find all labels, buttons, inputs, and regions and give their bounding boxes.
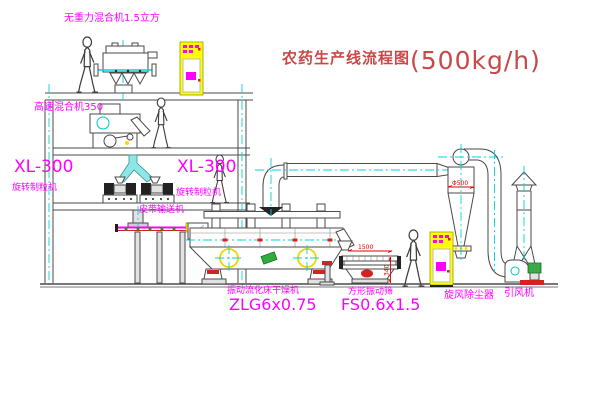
induced-draft-fan (505, 260, 544, 285)
label-screen-model: FS0.6x1.5 (341, 297, 420, 313)
label-belt-conveyor: 皮带输送机 (139, 206, 184, 215)
label-granulator-mid-model: XL-300 (177, 159, 236, 176)
screen-length-dimension: 1500 (358, 244, 373, 251)
person-second-floor (151, 98, 170, 148)
granulator-right (140, 177, 174, 203)
control-cabinet-top (180, 42, 203, 95)
label-high-speed-mixer: 高速混合机350 (34, 103, 103, 113)
label-granulator-mid-name: 旋转制粒机 (176, 189, 221, 198)
label-granulator-left-name: 旋转制粒机 (12, 184, 57, 193)
title-text: 农药生产线流程图 (282, 49, 410, 67)
flow-diagram-canvas: 1500 340 Φ500 农药生产线流程图(500kg/h) 无重力混合机1.… (0, 0, 600, 403)
control-cabinet-right (430, 232, 453, 287)
label-fan: 引风机 (504, 289, 534, 299)
diagram-title: 农药生产线流程图(500kg/h) (282, 46, 541, 75)
conveyor-support-legs (135, 232, 185, 283)
gravity-free-mixer (94, 43, 157, 93)
granulator-left (103, 177, 137, 203)
label-cyclone: 旋风除尘器 (444, 291, 494, 301)
person-ground (403, 230, 425, 286)
label-dryer-model: ZLG6x0.75 (229, 297, 317, 313)
cyclone-diameter-dimension: Φ500 (452, 180, 468, 187)
title-capacity: (500kg/h) (410, 46, 541, 75)
screen-height-dimension: 340 (384, 264, 391, 276)
label-gravity-mixer: 无重力混合机1.5立方 (64, 14, 160, 24)
label-granulator-left-model: XL-300 (14, 159, 73, 176)
